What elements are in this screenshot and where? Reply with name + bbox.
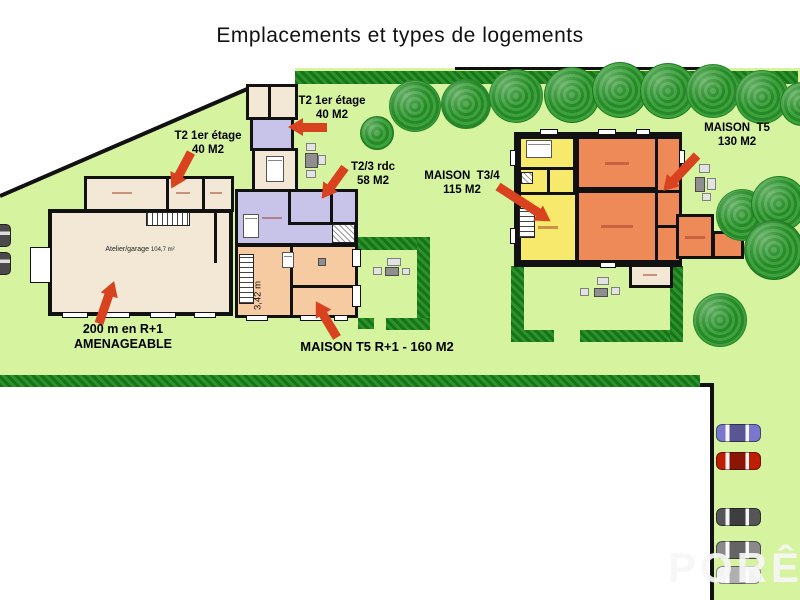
stairs xyxy=(146,212,190,226)
page-title: Emplacements et types de logements xyxy=(0,24,800,48)
garden-chair xyxy=(597,277,609,285)
wall xyxy=(288,192,291,222)
garden-chair xyxy=(318,155,326,165)
window xyxy=(334,315,348,321)
car xyxy=(716,508,761,526)
door xyxy=(352,285,361,307)
room-label-mark xyxy=(605,162,629,165)
tree xyxy=(489,69,543,123)
garden-chair xyxy=(373,267,382,275)
site-plan-canvas: Emplacements et types de logements Ateli… xyxy=(0,0,800,600)
hedge-left-enclosure-stub xyxy=(358,318,374,329)
hedge-right-enclosure-bottomright xyxy=(580,330,683,342)
room-label-mark xyxy=(210,192,222,194)
bed xyxy=(266,156,284,182)
garden-table xyxy=(305,153,318,168)
wall xyxy=(268,87,271,117)
garden-table xyxy=(594,288,608,297)
furniture xyxy=(318,258,326,266)
car xyxy=(716,452,761,470)
tree xyxy=(389,80,441,132)
room-label-mark xyxy=(112,192,132,194)
room-label-mark xyxy=(685,236,705,239)
door xyxy=(352,249,361,267)
garden-chair xyxy=(387,258,401,266)
label-maison-t5: MAISON T5130 M2 xyxy=(682,122,792,150)
garden-chair xyxy=(580,288,589,296)
terrasse xyxy=(629,264,673,288)
hedge-left-enclosure-bottom xyxy=(386,318,430,330)
tree xyxy=(686,64,740,118)
room-label-mark xyxy=(643,274,657,276)
car xyxy=(0,224,11,247)
window xyxy=(540,129,558,135)
double-door xyxy=(30,247,51,283)
furniture xyxy=(282,252,294,268)
hedge-left-enclosure-right xyxy=(417,237,430,330)
wall xyxy=(214,211,217,263)
left-annex-row xyxy=(84,176,234,212)
room-area: 104,7 m² xyxy=(151,247,175,253)
yellow-hall xyxy=(547,167,576,195)
garden-chair xyxy=(699,164,710,173)
road-area xyxy=(0,387,712,600)
atelier-garage-label: Atelier/garage 104,7 m² xyxy=(90,246,190,254)
garden-chair xyxy=(402,268,410,275)
window xyxy=(194,312,216,318)
garden-chair xyxy=(707,178,716,190)
label-t2-left: T2 1er étage40 M2 xyxy=(163,130,253,158)
tree xyxy=(441,79,491,129)
wall xyxy=(658,225,679,228)
window xyxy=(62,312,88,318)
dimension-342: 3,42 m xyxy=(253,266,264,326)
car xyxy=(0,252,11,275)
atelier-garage-hall xyxy=(48,209,233,316)
label-maison-t5-r1: MAISON T5 R+1 - 160 M2 xyxy=(292,339,462,355)
garden-table xyxy=(385,267,399,276)
bathroom-hatch xyxy=(332,224,355,243)
watermark: PORÊ xyxy=(668,544,800,592)
window xyxy=(510,150,516,166)
window xyxy=(150,312,176,318)
label-amenageable: 200 m en R+1AMENAGEABLE xyxy=(58,322,188,352)
window xyxy=(636,129,650,135)
shower xyxy=(521,172,533,184)
garden-chair xyxy=(306,170,316,178)
arrow-t2-top xyxy=(302,123,327,132)
bed xyxy=(243,214,259,238)
room-name: Atelier/garage xyxy=(105,246,149,253)
garden-chair xyxy=(611,287,620,295)
window xyxy=(598,129,616,135)
garden-chair xyxy=(702,193,711,201)
wall xyxy=(202,179,205,209)
room-label-mark xyxy=(601,225,633,228)
room-label-mark xyxy=(538,226,558,229)
garden-chair xyxy=(306,143,316,151)
garden-table xyxy=(695,177,705,192)
hedge-right-enclosure-bottomleft xyxy=(511,330,554,342)
tree xyxy=(744,220,800,280)
wall xyxy=(290,285,355,288)
car xyxy=(716,424,761,442)
window xyxy=(104,312,130,318)
tree xyxy=(693,293,747,347)
room-label-mark xyxy=(262,217,282,219)
terrasse-door xyxy=(600,262,616,268)
window xyxy=(510,228,516,244)
bed xyxy=(526,140,552,158)
hedge-bottom xyxy=(0,375,700,387)
